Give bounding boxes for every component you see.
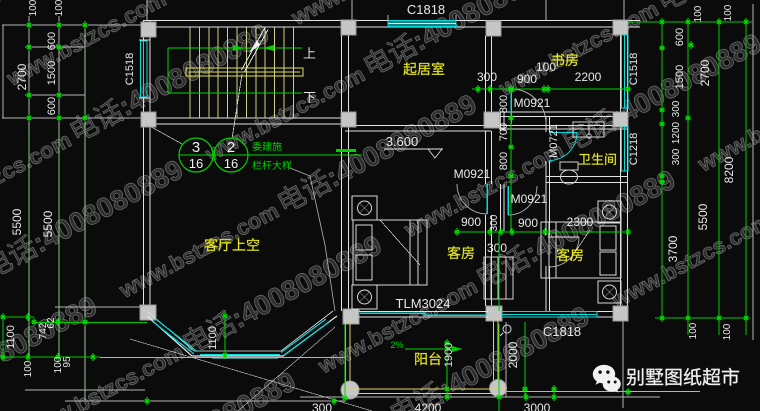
svg-text:600: 600 xyxy=(46,97,58,115)
svg-text:1200: 1200 xyxy=(671,121,682,144)
svg-text:62: 62 xyxy=(46,317,57,329)
svg-text:2%: 2% xyxy=(390,340,403,350)
svg-text:700: 700 xyxy=(498,123,510,141)
svg-text:C1818: C1818 xyxy=(407,2,445,17)
svg-text:100: 100 xyxy=(723,4,734,21)
svg-text:95: 95 xyxy=(62,356,73,368)
svg-text:8200: 8200 xyxy=(722,156,736,183)
svg-text:TLM3024: TLM3024 xyxy=(396,296,451,311)
svg-text:300: 300 xyxy=(477,70,497,84)
svg-text:M0921: M0921 xyxy=(514,96,551,110)
svg-text:300: 300 xyxy=(671,100,682,117)
svg-text:5500: 5500 xyxy=(41,210,55,237)
svg-text:1500: 1500 xyxy=(46,61,58,85)
svg-text:800: 800 xyxy=(498,95,510,113)
svg-text:2000: 2000 xyxy=(506,341,520,368)
svg-text:300: 300 xyxy=(671,148,682,165)
svg-text:3700: 3700 xyxy=(666,235,680,262)
svg-text:C1218: C1218 xyxy=(628,133,640,165)
svg-text:100: 100 xyxy=(722,323,733,340)
svg-text:900: 900 xyxy=(517,72,537,86)
svg-text:1100: 1100 xyxy=(207,326,219,350)
svg-text:3: 3 xyxy=(192,139,200,156)
svg-text:2: 2 xyxy=(227,139,235,156)
svg-text:300: 300 xyxy=(489,214,500,231)
svg-text:5500: 5500 xyxy=(696,203,710,230)
svg-text:1100: 1100 xyxy=(5,325,17,349)
svg-text:1900: 1900 xyxy=(443,343,455,367)
svg-text:300: 300 xyxy=(487,241,507,255)
svg-text:300: 300 xyxy=(312,401,332,411)
svg-text:M0721: M0721 xyxy=(548,124,560,158)
svg-text:800: 800 xyxy=(498,152,510,170)
svg-text:600: 600 xyxy=(674,28,686,46)
svg-text:100: 100 xyxy=(28,0,39,16)
svg-text:4200: 4200 xyxy=(415,401,442,411)
svg-text:16: 16 xyxy=(224,156,238,171)
svg-text:2700: 2700 xyxy=(698,59,712,86)
svg-text:1500: 1500 xyxy=(674,65,686,89)
svg-text:C1518: C1518 xyxy=(124,53,136,85)
svg-text:C1818: C1818 xyxy=(543,324,581,339)
svg-text:900: 900 xyxy=(518,216,538,230)
svg-text:16: 16 xyxy=(189,156,203,171)
svg-text:600: 600 xyxy=(46,32,58,50)
svg-text:3000: 3000 xyxy=(524,401,551,411)
svg-text:2300: 2300 xyxy=(567,215,594,229)
svg-text:C1518: C1518 xyxy=(628,53,640,85)
svg-text:100: 100 xyxy=(693,5,704,22)
svg-text:M0921: M0921 xyxy=(454,167,491,181)
svg-text:100: 100 xyxy=(536,60,556,74)
svg-text:100: 100 xyxy=(688,322,699,339)
svg-text:100: 100 xyxy=(54,0,65,16)
svg-text:900: 900 xyxy=(461,215,481,229)
svg-text:100: 100 xyxy=(23,360,34,377)
svg-text:3.600: 3.600 xyxy=(386,134,419,149)
svg-text:5500: 5500 xyxy=(10,208,24,235)
svg-text:M0921: M0921 xyxy=(511,192,548,206)
svg-text:2700: 2700 xyxy=(15,63,29,90)
svg-text:2200: 2200 xyxy=(575,70,602,84)
